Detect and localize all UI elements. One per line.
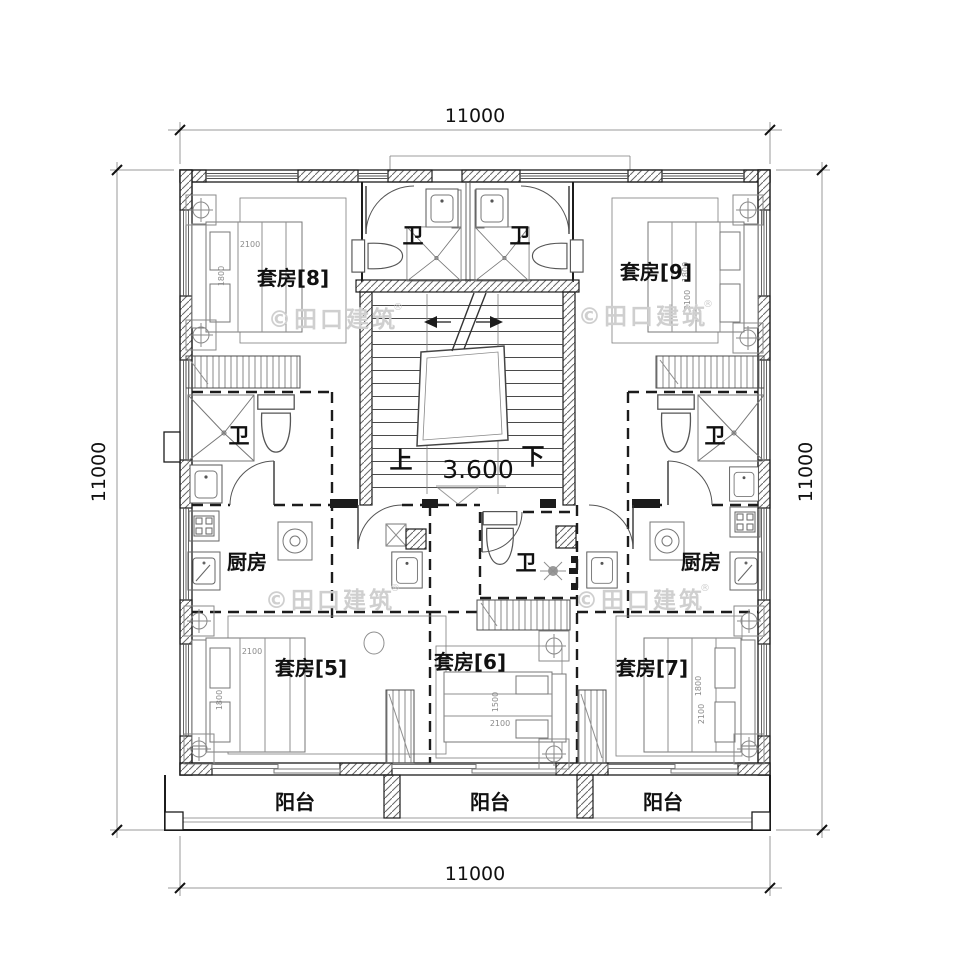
bath-left-label: 卫 [229,424,250,448]
suite-7: 1800 2100 套房[7] [616,606,764,764]
suite7-label: 套房[7] [616,656,688,680]
toilet-left [258,395,294,452]
washer-left [278,522,312,560]
svg-text:®: ® [700,583,710,594]
toilet-right [658,395,694,452]
svg-text:®: ® [393,302,403,313]
kitchen-right-label: 厨房 [681,550,721,574]
basin-suite5 [364,632,384,654]
watermark-1: ©田口建筑 [268,306,398,333]
balcony-3-label: 阳台 [643,790,683,814]
bed6-length-dim: 2100 [490,719,510,728]
toilet-bath9 [532,240,583,272]
bath9-label: 卫 [510,224,531,248]
svg-text:®: ® [703,299,713,310]
kitchen-sink-left [188,552,220,590]
watermark-4: ©田口建筑 [575,587,705,614]
watermark-2: ©田口建筑 [578,303,708,330]
bed7-width-dim: 2100 [697,704,706,724]
suite9-label: 套房[9] [620,260,692,284]
stair-down-label: 下 [522,444,545,470]
column-symbol [539,631,569,661]
sink-bath9 [476,189,508,227]
sink-bath8 [426,189,458,227]
bed-headboard [192,224,206,328]
bath-center-label: 卫 [516,551,537,575]
kitchen-sink-right [730,552,762,590]
svg-text:®: ® [390,583,400,594]
dimension-left: 11000 [88,442,110,502]
bath8-label: 卫 [403,224,424,248]
sink-right-bath [730,467,759,501]
suite6-label: 套房[6] [434,650,506,674]
suite-5: 2100 1800 套房[5] [184,606,446,764]
floor-level: 3.600 [442,455,514,484]
floor-plan-svg: 11000 11000 11000 11000 [0,0,960,960]
bed5-length-dim: 1800 [215,690,224,710]
bed8-width-dim: 2100 [240,240,260,249]
bed-headboard [552,674,566,742]
suite5-label: 套房[5] [275,656,347,680]
bed8-length-dim: 1800 [217,266,226,286]
stove-left [189,511,219,541]
bed-headboard [192,640,206,746]
top-bathrooms: 卫 卫 [352,182,583,292]
dimension-right: 11000 [795,442,817,502]
washer-right [650,522,684,560]
bed-headboard [741,640,755,746]
suite8-label: 套房[8] [257,266,329,290]
stove-right [730,507,760,537]
balcony-1-label: 阳台 [275,790,315,814]
vanity-right [587,552,617,588]
balconies: 阳台 阳台 阳台 [165,775,770,830]
dimension-bottom: 11000 [445,863,505,885]
stair-up-label: 上 [390,448,413,474]
bed-headboard [744,224,758,328]
bath-right-label: 卫 [705,424,726,448]
bed6-width-dim: 1500 [491,692,500,712]
bed7-length-dim: 1800 [694,676,703,696]
bed5-width-dim: 2100 [242,647,262,656]
floor-plan-canvas: 11000 11000 11000 11000 [0,0,960,960]
toilet-bath8 [352,240,403,272]
dimension-top: 11000 [445,105,505,127]
stair-landing [417,346,508,446]
watermark-3: ©田口建筑 [265,587,395,614]
kitchen-left-label: 厨房 [227,550,267,574]
sink-left-bath [190,465,222,503]
suite-6: 1500 2100 套房[6] [434,631,606,769]
balcony-2-label: 阳台 [470,790,510,814]
